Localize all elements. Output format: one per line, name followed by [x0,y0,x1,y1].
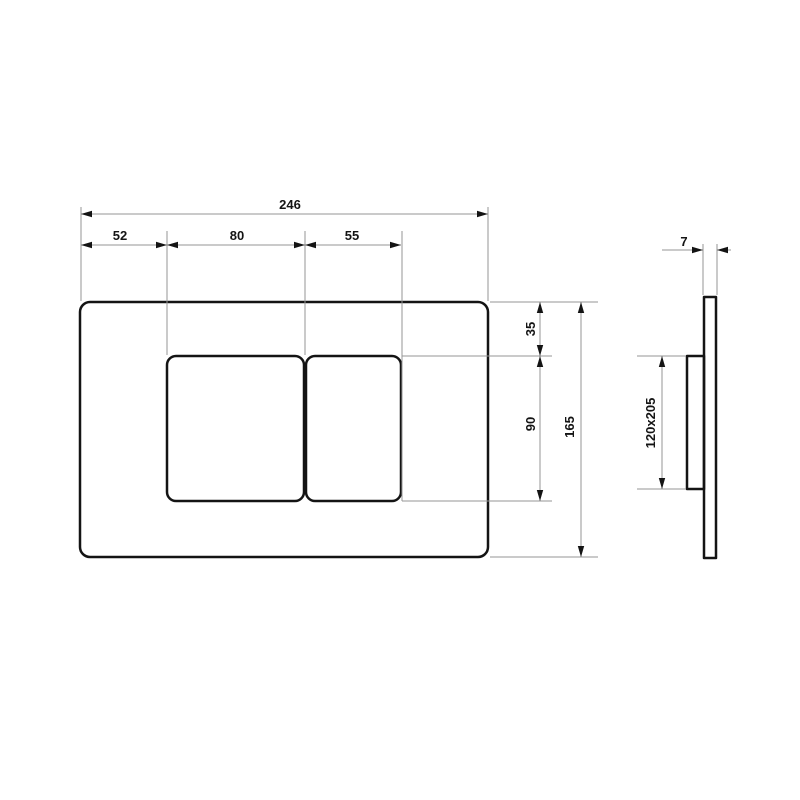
arrow-icon [717,247,728,253]
plate-outline [80,302,488,557]
arrow-icon [156,242,167,248]
arrow-icon [537,345,543,356]
arrow-icon [578,302,584,313]
arrow-icon [477,211,488,217]
side-profile-frame-box [687,356,704,489]
arrow-icon [390,242,401,248]
dim-label-frame-size: 120x205 [643,398,658,449]
dim-label-total-height: 165 [562,416,577,438]
arrow-icon [692,247,703,253]
flush-button-small [306,356,401,501]
arrow-icon [305,242,316,248]
arrow-icon [537,356,543,367]
dim-label-thickness: 7 [680,234,687,249]
dimension-lines [81,207,731,557]
front-view [80,302,488,557]
dim-label-total-width: 246 [279,197,301,212]
arrow-icon [537,490,543,501]
arrow-icon [81,211,92,217]
arrow-icon [537,302,543,313]
arrow-icon [578,546,584,557]
flush-button-large [167,356,304,501]
dim-label-top-offset: 35 [523,322,538,336]
dim-label-button-small-width: 55 [345,228,359,243]
dim-label-button-height: 90 [523,417,538,431]
arrow-icon [659,356,665,367]
arrow-icon [294,242,305,248]
technical-drawing-canvas: 246 52 80 55 35 90 165 7 120x205 [0,0,800,800]
dim-label-button-large-width: 80 [230,228,244,243]
arrow-icon [167,242,178,248]
arrow-icon [659,478,665,489]
drawing-svg: 246 52 80 55 35 90 165 7 120x205 [0,0,800,800]
side-view [687,297,716,558]
arrow-icon [81,242,92,248]
side-profile-plate [704,297,716,558]
dimension-arrows [81,211,728,557]
dim-label-left-offset: 52 [113,228,127,243]
